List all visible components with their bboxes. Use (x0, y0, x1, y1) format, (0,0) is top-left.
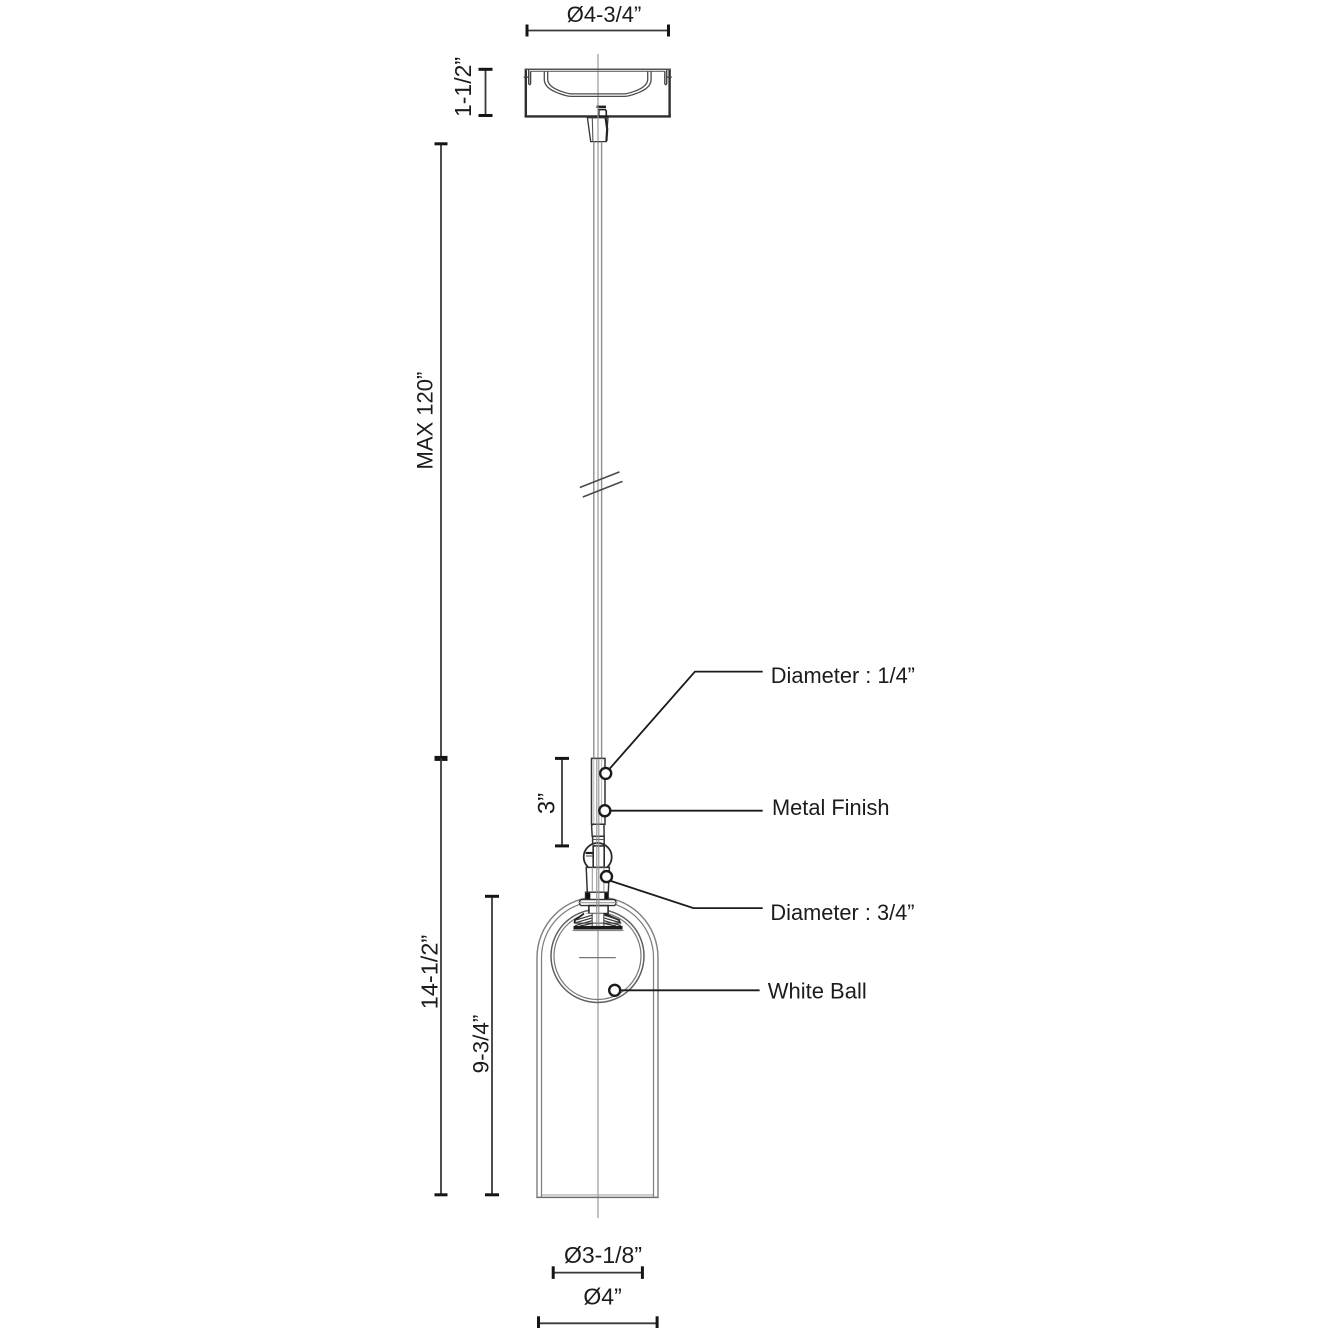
svg-text:1-1/2”: 1-1/2” (450, 57, 476, 117)
svg-text:Ø4-3/4”: Ø4-3/4” (567, 2, 642, 27)
svg-text:MAX 120”: MAX 120” (413, 372, 438, 470)
svg-text:14-1/2”: 14-1/2” (417, 935, 443, 1009)
svg-text:9-3/4”: 9-3/4” (469, 1015, 494, 1074)
svg-text:Diameter : 1/4”: Diameter : 1/4” (771, 663, 915, 688)
svg-text:Metal Finish: Metal Finish (772, 795, 890, 820)
svg-text:Ø3-1/8”: Ø3-1/8” (564, 1242, 642, 1268)
svg-text:3”: 3” (534, 793, 561, 814)
svg-text:Diameter : 3/4”: Diameter : 3/4” (770, 900, 914, 925)
svg-text:White Ball: White Ball (768, 979, 867, 1004)
svg-text:Ø4”: Ø4” (583, 1284, 621, 1310)
